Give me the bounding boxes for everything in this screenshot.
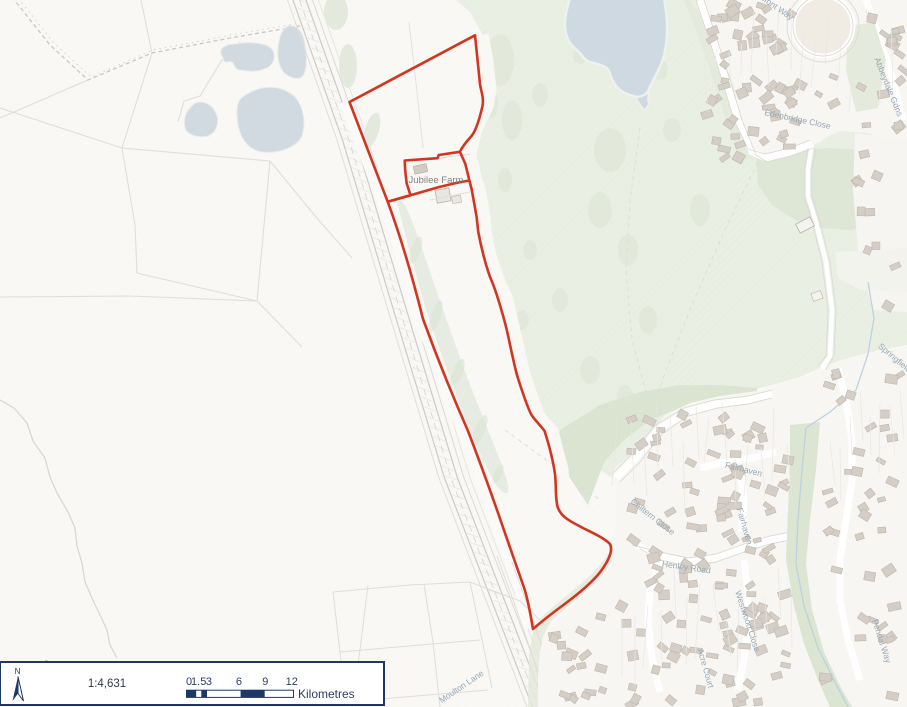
svg-text:Kilometres: Kilometres xyxy=(298,687,355,701)
svg-text:12: 12 xyxy=(286,676,298,688)
svg-text:1:4,631: 1:4,631 xyxy=(88,678,126,690)
svg-text:1.5: 1.5 xyxy=(191,676,206,688)
svg-text:9: 9 xyxy=(262,676,268,688)
svg-text:6: 6 xyxy=(236,676,242,688)
svg-text:3: 3 xyxy=(206,676,212,688)
svg-text:Jubilee Farm: Jubilee Farm xyxy=(409,175,464,186)
svg-text:N: N xyxy=(15,667,21,676)
